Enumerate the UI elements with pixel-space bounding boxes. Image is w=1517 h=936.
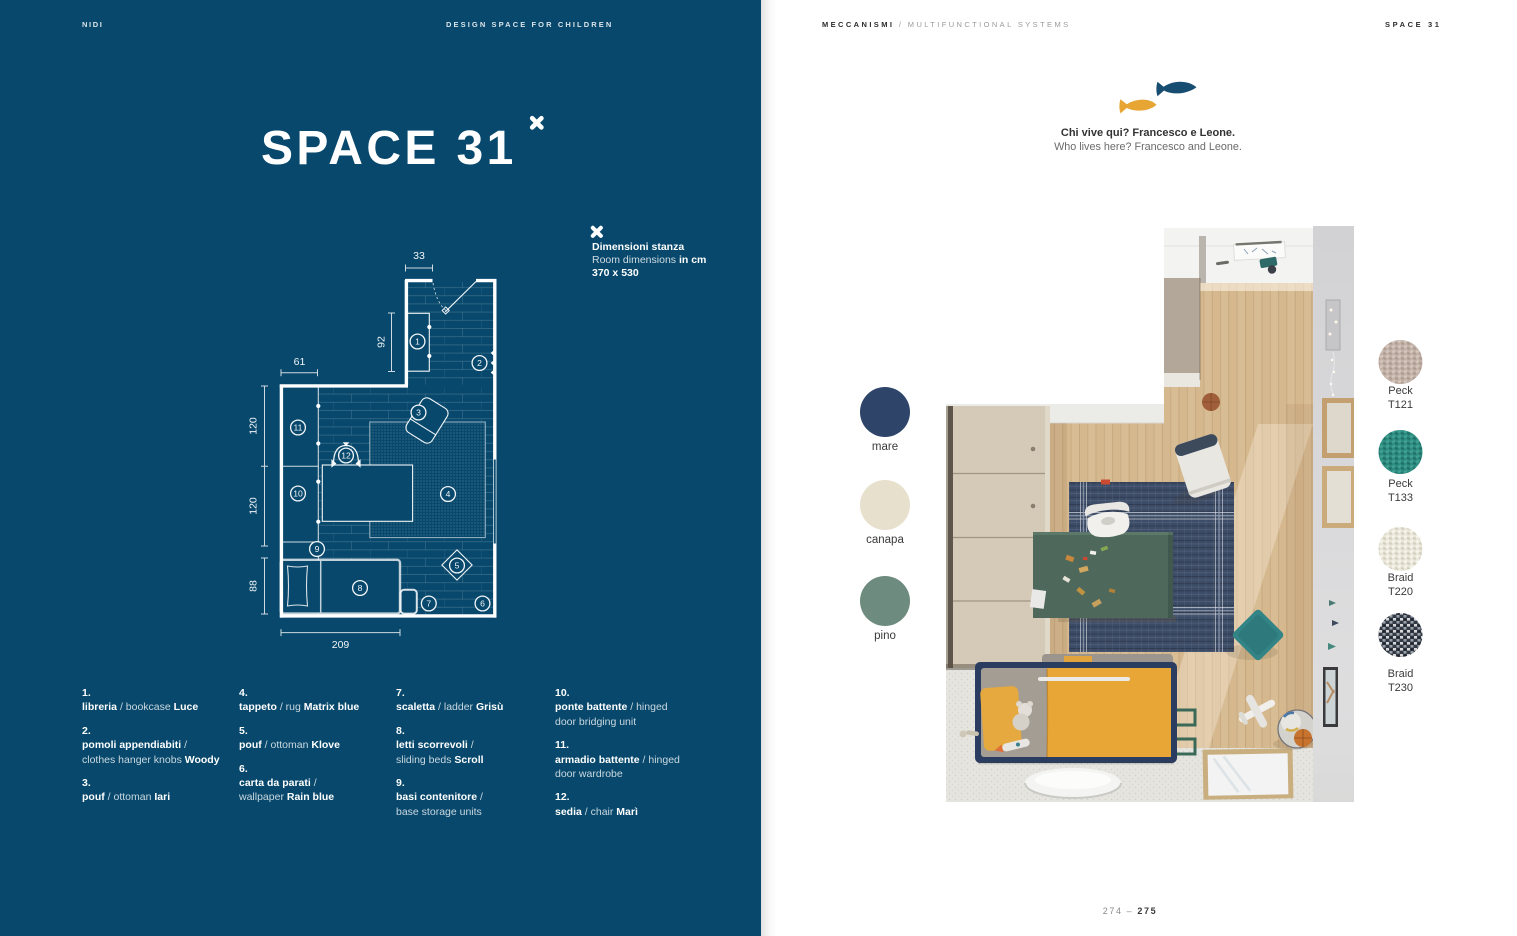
- svg-text:1: 1: [415, 337, 420, 347]
- svg-text:11: 11: [294, 423, 303, 433]
- svg-text:2: 2: [477, 358, 482, 368]
- svg-text:12: 12: [341, 451, 351, 461]
- svg-text:9: 9: [315, 544, 320, 554]
- svg-text:88: 88: [248, 580, 260, 592]
- svg-text:120: 120: [248, 417, 260, 435]
- svg-text:4: 4: [446, 489, 451, 499]
- svg-text:8: 8: [358, 583, 363, 593]
- svg-text:10: 10: [293, 489, 303, 499]
- svg-text:61: 61: [294, 356, 306, 368]
- svg-text:5: 5: [455, 561, 460, 571]
- svg-text:7: 7: [426, 599, 431, 609]
- svg-text:33: 33: [413, 250, 425, 262]
- svg-text:120: 120: [248, 497, 260, 515]
- svg-text:6: 6: [480, 599, 485, 609]
- svg-text:209: 209: [332, 639, 350, 651]
- svg-text:3: 3: [416, 408, 421, 418]
- svg-text:92: 92: [376, 336, 388, 348]
